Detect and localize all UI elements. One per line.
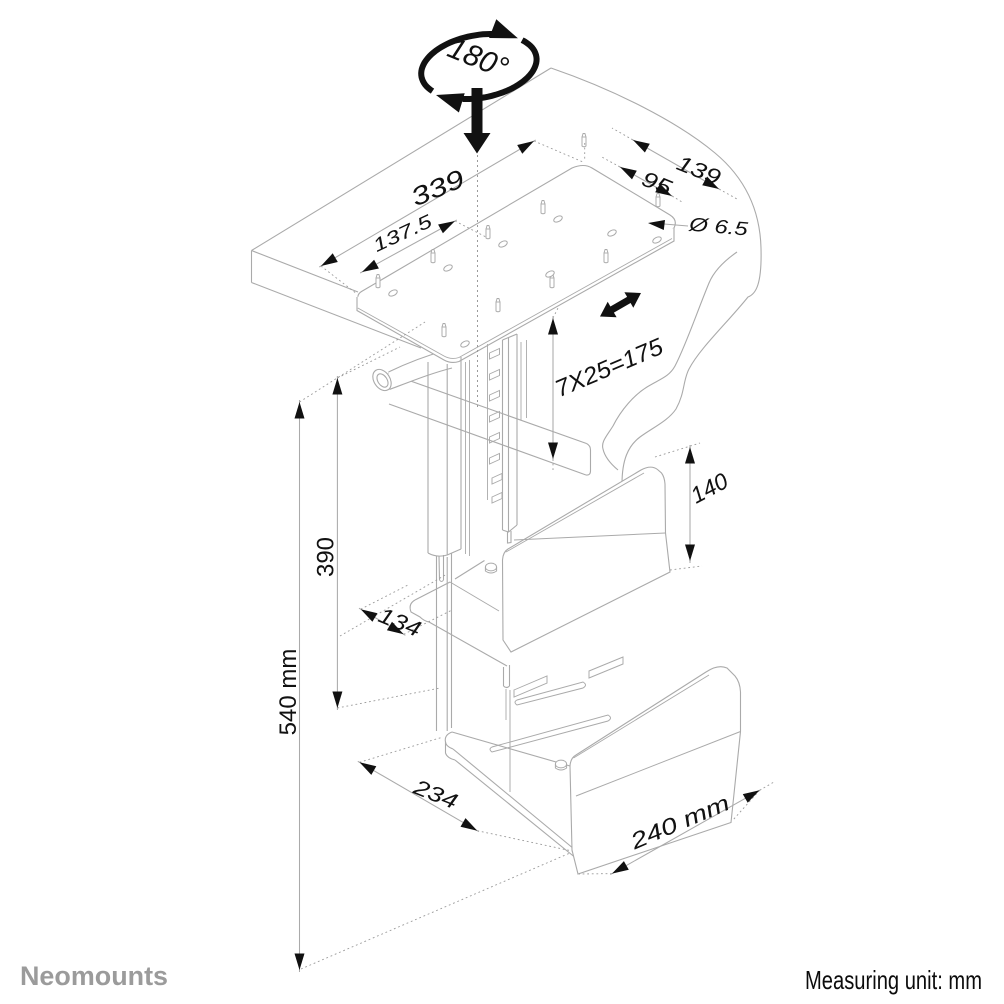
svg-text:Neomounts: Neomounts: [20, 961, 168, 991]
svg-text:390: 390: [313, 537, 340, 577]
svg-text:540 mm: 540 mm: [275, 649, 302, 736]
svg-text:Measuring unit: mm: Measuring unit: mm: [805, 965, 982, 995]
